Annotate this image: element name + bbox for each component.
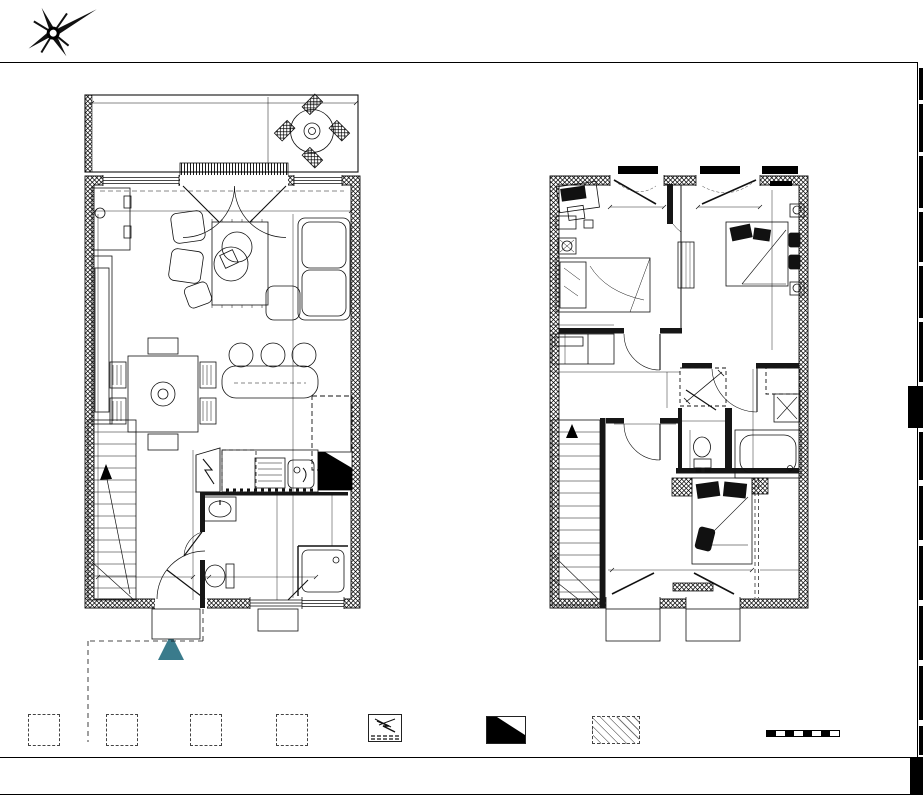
legend-box-lave-linge — [190, 714, 222, 746]
legend-box-gaine — [486, 716, 526, 744]
upper-floor-plan — [550, 166, 808, 641]
floor-plan-page — [0, 0, 923, 800]
legend-box-cuisson — [28, 714, 60, 746]
legend-box-faux-plafond — [592, 716, 640, 744]
lightning-icon — [369, 715, 401, 741]
page-edge-marks — [908, 68, 923, 795]
legend-box-refrigerateur — [106, 714, 138, 746]
floor-plan-linework — [0, 0, 923, 800]
legend-box-espace-technique — [368, 714, 402, 742]
compass-rose — [22, 0, 104, 62]
scale-bar-graphic — [766, 730, 840, 737]
ground-floor-plan — [85, 94, 360, 742]
gaine-icon — [487, 717, 525, 743]
legend-box-lave-vaisselle — [276, 714, 308, 746]
